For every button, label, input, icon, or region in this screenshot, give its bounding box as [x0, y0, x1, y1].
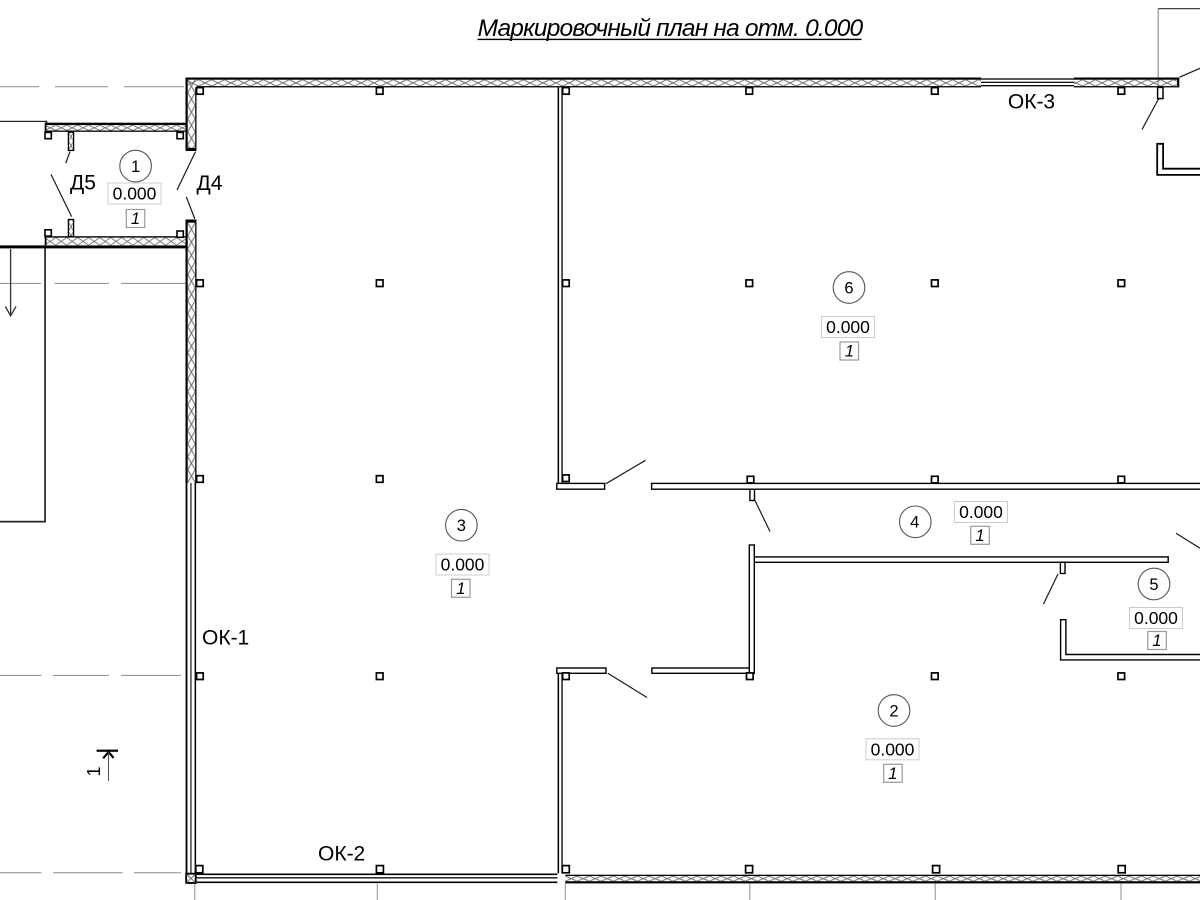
- svg-text:1: 1: [131, 210, 140, 228]
- svg-text:0.000: 0.000: [959, 502, 1003, 522]
- svg-text:1: 1: [131, 158, 140, 176]
- svg-text:ОК-2: ОК-2: [318, 843, 365, 866]
- svg-text:1: 1: [84, 766, 104, 776]
- svg-text:1: 1: [1152, 632, 1161, 650]
- svg-text:1: 1: [975, 527, 984, 545]
- svg-text:0.000: 0.000: [441, 555, 485, 575]
- svg-text:5: 5: [1149, 576, 1158, 594]
- svg-text:1: 1: [845, 343, 854, 361]
- svg-text:0.000: 0.000: [1134, 608, 1178, 628]
- svg-text:3: 3: [457, 517, 466, 535]
- svg-text:Маркировочный план на отм. 0.0: Маркировочный план на отм. 0.000: [478, 15, 864, 42]
- svg-text:4: 4: [910, 514, 919, 532]
- svg-text:Д4: Д4: [197, 172, 223, 195]
- svg-text:2: 2: [889, 702, 898, 720]
- svg-text:ОК-3: ОК-3: [1008, 91, 1055, 114]
- svg-text:1: 1: [888, 765, 897, 783]
- svg-text:ОК-1: ОК-1: [202, 627, 249, 650]
- svg-text:0.000: 0.000: [871, 739, 915, 759]
- svg-text:0.000: 0.000: [113, 184, 157, 204]
- svg-text:0.000: 0.000: [826, 317, 870, 337]
- svg-text:Д5: Д5: [70, 172, 96, 195]
- svg-text:6: 6: [844, 279, 853, 297]
- svg-text:1: 1: [456, 580, 465, 598]
